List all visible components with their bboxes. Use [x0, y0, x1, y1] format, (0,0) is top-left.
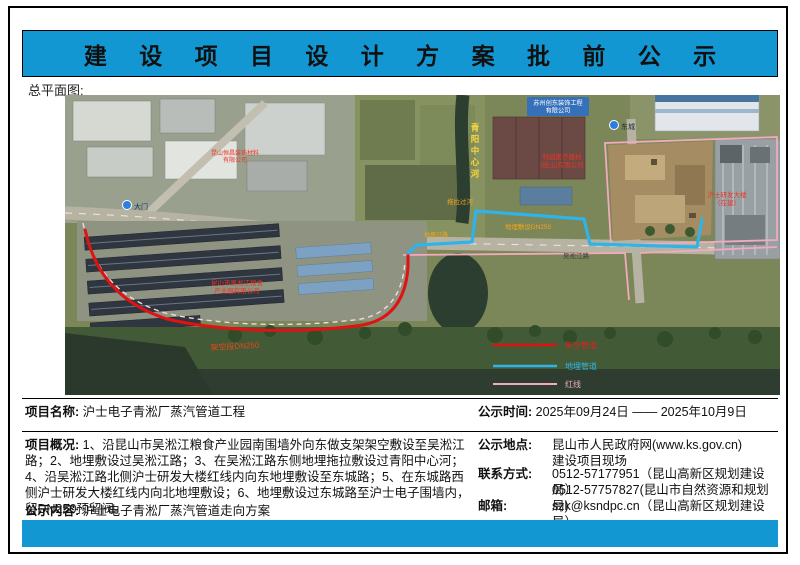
publicity-place-label: 公示地点:: [478, 438, 532, 452]
company-label-keyuan: 科园医疗器材 (昆山)有限公司: [540, 152, 583, 169]
buried-segment-label: 地埋敷设DN250: [505, 222, 552, 231]
banner-title-bar: 建 设 项 目 设 计 方 案 批 前 公 示: [22, 30, 778, 77]
publicity-content-value: 沪士电子青淞厂蒸汽管道走向方案: [83, 504, 271, 518]
publicity-time-value: 2025年09月24日 —— 2025年10月9日: [536, 405, 747, 419]
bottom-blue-bar: [22, 520, 778, 547]
email-label: 邮箱:: [478, 499, 507, 513]
company-label-top: 苏州创东装饰工程 有限公司: [527, 97, 589, 116]
publicity-time-row: 公示时间: 2025年09月24日 —— 2025年10月9日: [478, 404, 773, 420]
svg-text:沪士研发大楼: 沪士研发大楼: [708, 190, 748, 199]
divider-top: [22, 398, 778, 399]
south-green-belt: [65, 322, 780, 395]
project-name-row: 项目名称: 沪士电子青淞厂蒸汽管道工程: [25, 404, 465, 420]
publicity-content-label: 公示内容:: [25, 504, 79, 518]
satellite-map: 大门 东城 苏州创东装饰工程 有限公司 青阳中心河 科园医疗器材 (昆山)有限公…: [65, 95, 780, 395]
publicity-place-label-wrap: 公示地点:: [478, 437, 532, 453]
dongcheng-marker-label: 东城: [621, 122, 635, 131]
svg-text:(昆山)有限公司: (昆山)有限公司: [540, 160, 583, 169]
construction-site: [608, 141, 713, 241]
svg-text:昆山市吴淞江粮食: 昆山市吴淞江粮食: [211, 278, 264, 287]
company-label-grain-park: 昆山市吴淞江粮食 产业园有限公司: [211, 278, 264, 295]
svg-text:有限公司: 有限公司: [546, 107, 571, 115]
project-name-value: 沪士电子青淞厂蒸汽管道工程: [83, 405, 246, 419]
project-overview-label: 项目概况:: [25, 438, 79, 452]
email-label-wrap: 邮箱:: [478, 498, 507, 514]
road-name-label: 吴淞江路: [563, 251, 590, 260]
svg-text:苏州创东装饰工程: 苏州创东装饰工程: [533, 99, 583, 107]
banner-title: 建 设 项 目 设 计 方 案 批 前 公 示: [71, 37, 729, 71]
gate-marker-label: 大门: [134, 202, 148, 211]
divider-row1: [22, 431, 778, 432]
notice-sheet: 建 设 项 目 设 计 方 案 批 前 公 示 总平面图:: [0, 0, 800, 565]
cross-road-label: 地埋过路: [424, 231, 448, 239]
svg-text:产业园有限公司: 产业园有限公司: [214, 286, 260, 295]
svg-text:（在建）: （在建）: [714, 198, 740, 207]
contact-label-wrap: 联系方式:: [478, 466, 532, 482]
project-name-label: 项目名称:: [25, 405, 79, 419]
publicity-place-line1: 昆山市人民政府网(www.ks.gov.cn): [552, 437, 778, 453]
legend-aerial: 架空管道: [565, 340, 597, 350]
cross-river-label: 拖拉过河: [447, 197, 474, 206]
svg-text:有限公司: 有限公司: [223, 156, 247, 164]
legend-redline: 红线: [565, 379, 581, 389]
publicity-time-label: 公示时间:: [478, 405, 532, 419]
contact-label: 联系方式:: [478, 467, 532, 481]
svg-text:科园医疗器材: 科园医疗器材: [543, 152, 583, 161]
river-name-label: 青阳中心河: [470, 122, 480, 180]
publicity-content-row: 公示内容: 沪士电子青淞厂蒸汽管道走向方案: [25, 503, 465, 519]
legend-buried: 地埋管道: [565, 361, 597, 371]
blue-roof-warehouses: [296, 242, 374, 294]
svg-text:昆山恒昌装饰材料: 昆山恒昌装饰材料: [211, 149, 259, 157]
white-blue-factory: [655, 95, 759, 131]
